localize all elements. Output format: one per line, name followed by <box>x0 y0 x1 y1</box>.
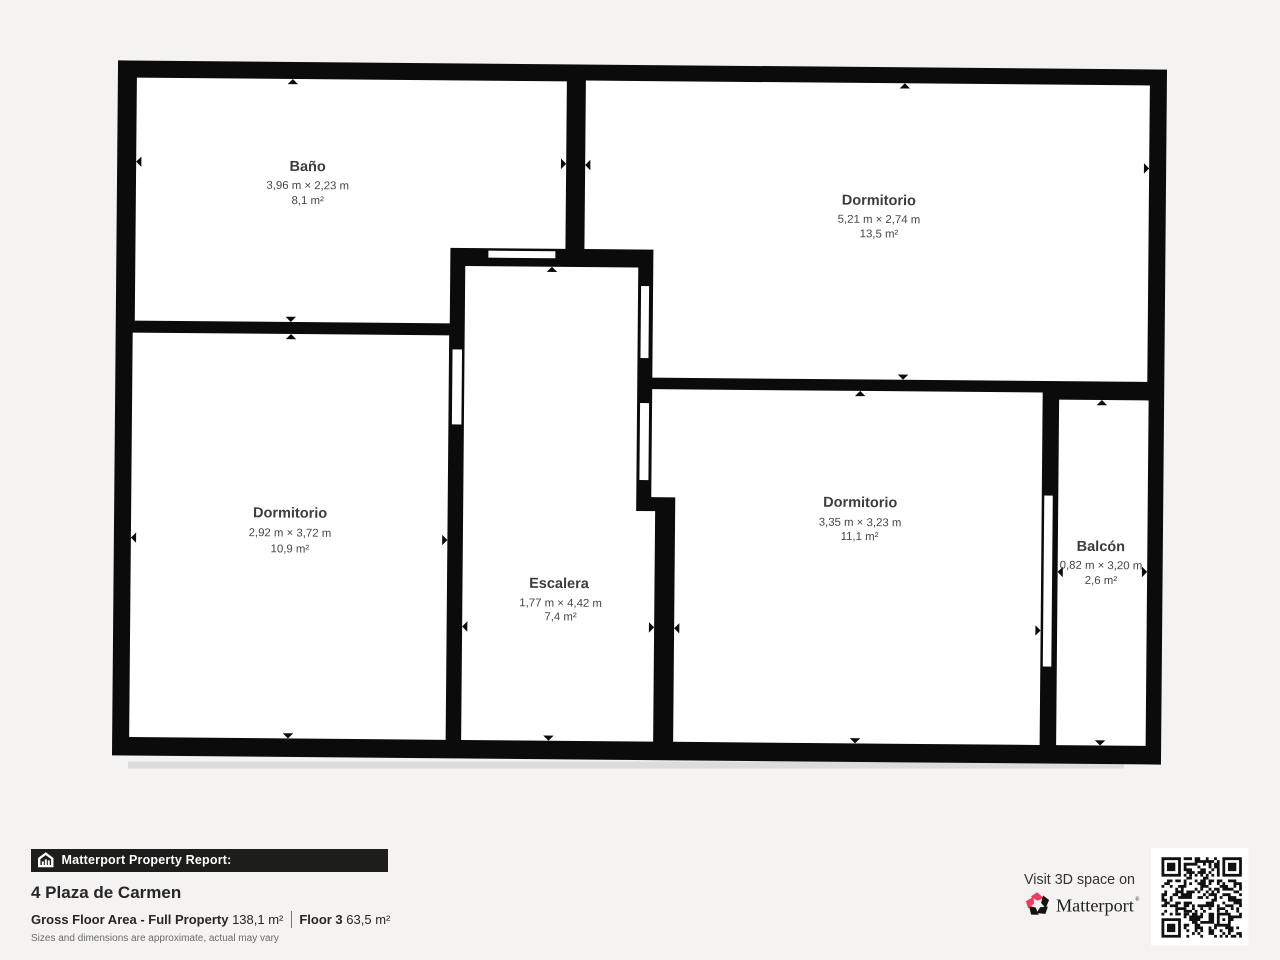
svg-text:11,1 m²: 11,1 m² <box>841 531 879 543</box>
svg-text:Dormitorio: Dormitorio <box>842 193 916 210</box>
svg-text:®: ® <box>1135 896 1140 903</box>
svg-text:Escalera: Escalera <box>529 576 590 593</box>
svg-text:Dormitorio: Dormitorio <box>823 495 897 512</box>
svg-text:Matterport: Matterport <box>1056 896 1134 916</box>
svg-text:3,35 m × 3,23 m: 3,35 m × 3,23 m <box>819 517 902 530</box>
svg-text:5,21 m × 2,74 m: 5,21 m × 2,74 m <box>838 214 921 227</box>
svg-text:10,9 m²: 10,9 m² <box>271 543 310 555</box>
svg-text:1,77 m × 4,42 m: 1,77 m × 4,42 m <box>519 597 602 610</box>
svg-text:Balcón: Balcón <box>1077 539 1125 555</box>
svg-text:8,1 m²: 8,1 m² <box>291 195 324 207</box>
svg-text:2,6 m²: 2,6 m² <box>1085 575 1118 587</box>
svg-text:3,96 m × 2,23 m: 3,96 m × 2,23 m <box>266 180 349 193</box>
svg-text:13,5 m²: 13,5 m² <box>860 228 899 240</box>
svg-text:7,4 m²: 7,4 m² <box>544 611 577 623</box>
svg-text:Dormitorio: Dormitorio <box>253 505 327 522</box>
svg-text:2,92 m × 3,72 m: 2,92 m × 3,72 m <box>249 527 332 540</box>
svg-text:0,82 m × 3,20 m: 0,82 m × 3,20 m <box>1060 560 1143 573</box>
svg-text:Baño: Baño <box>289 159 326 175</box>
